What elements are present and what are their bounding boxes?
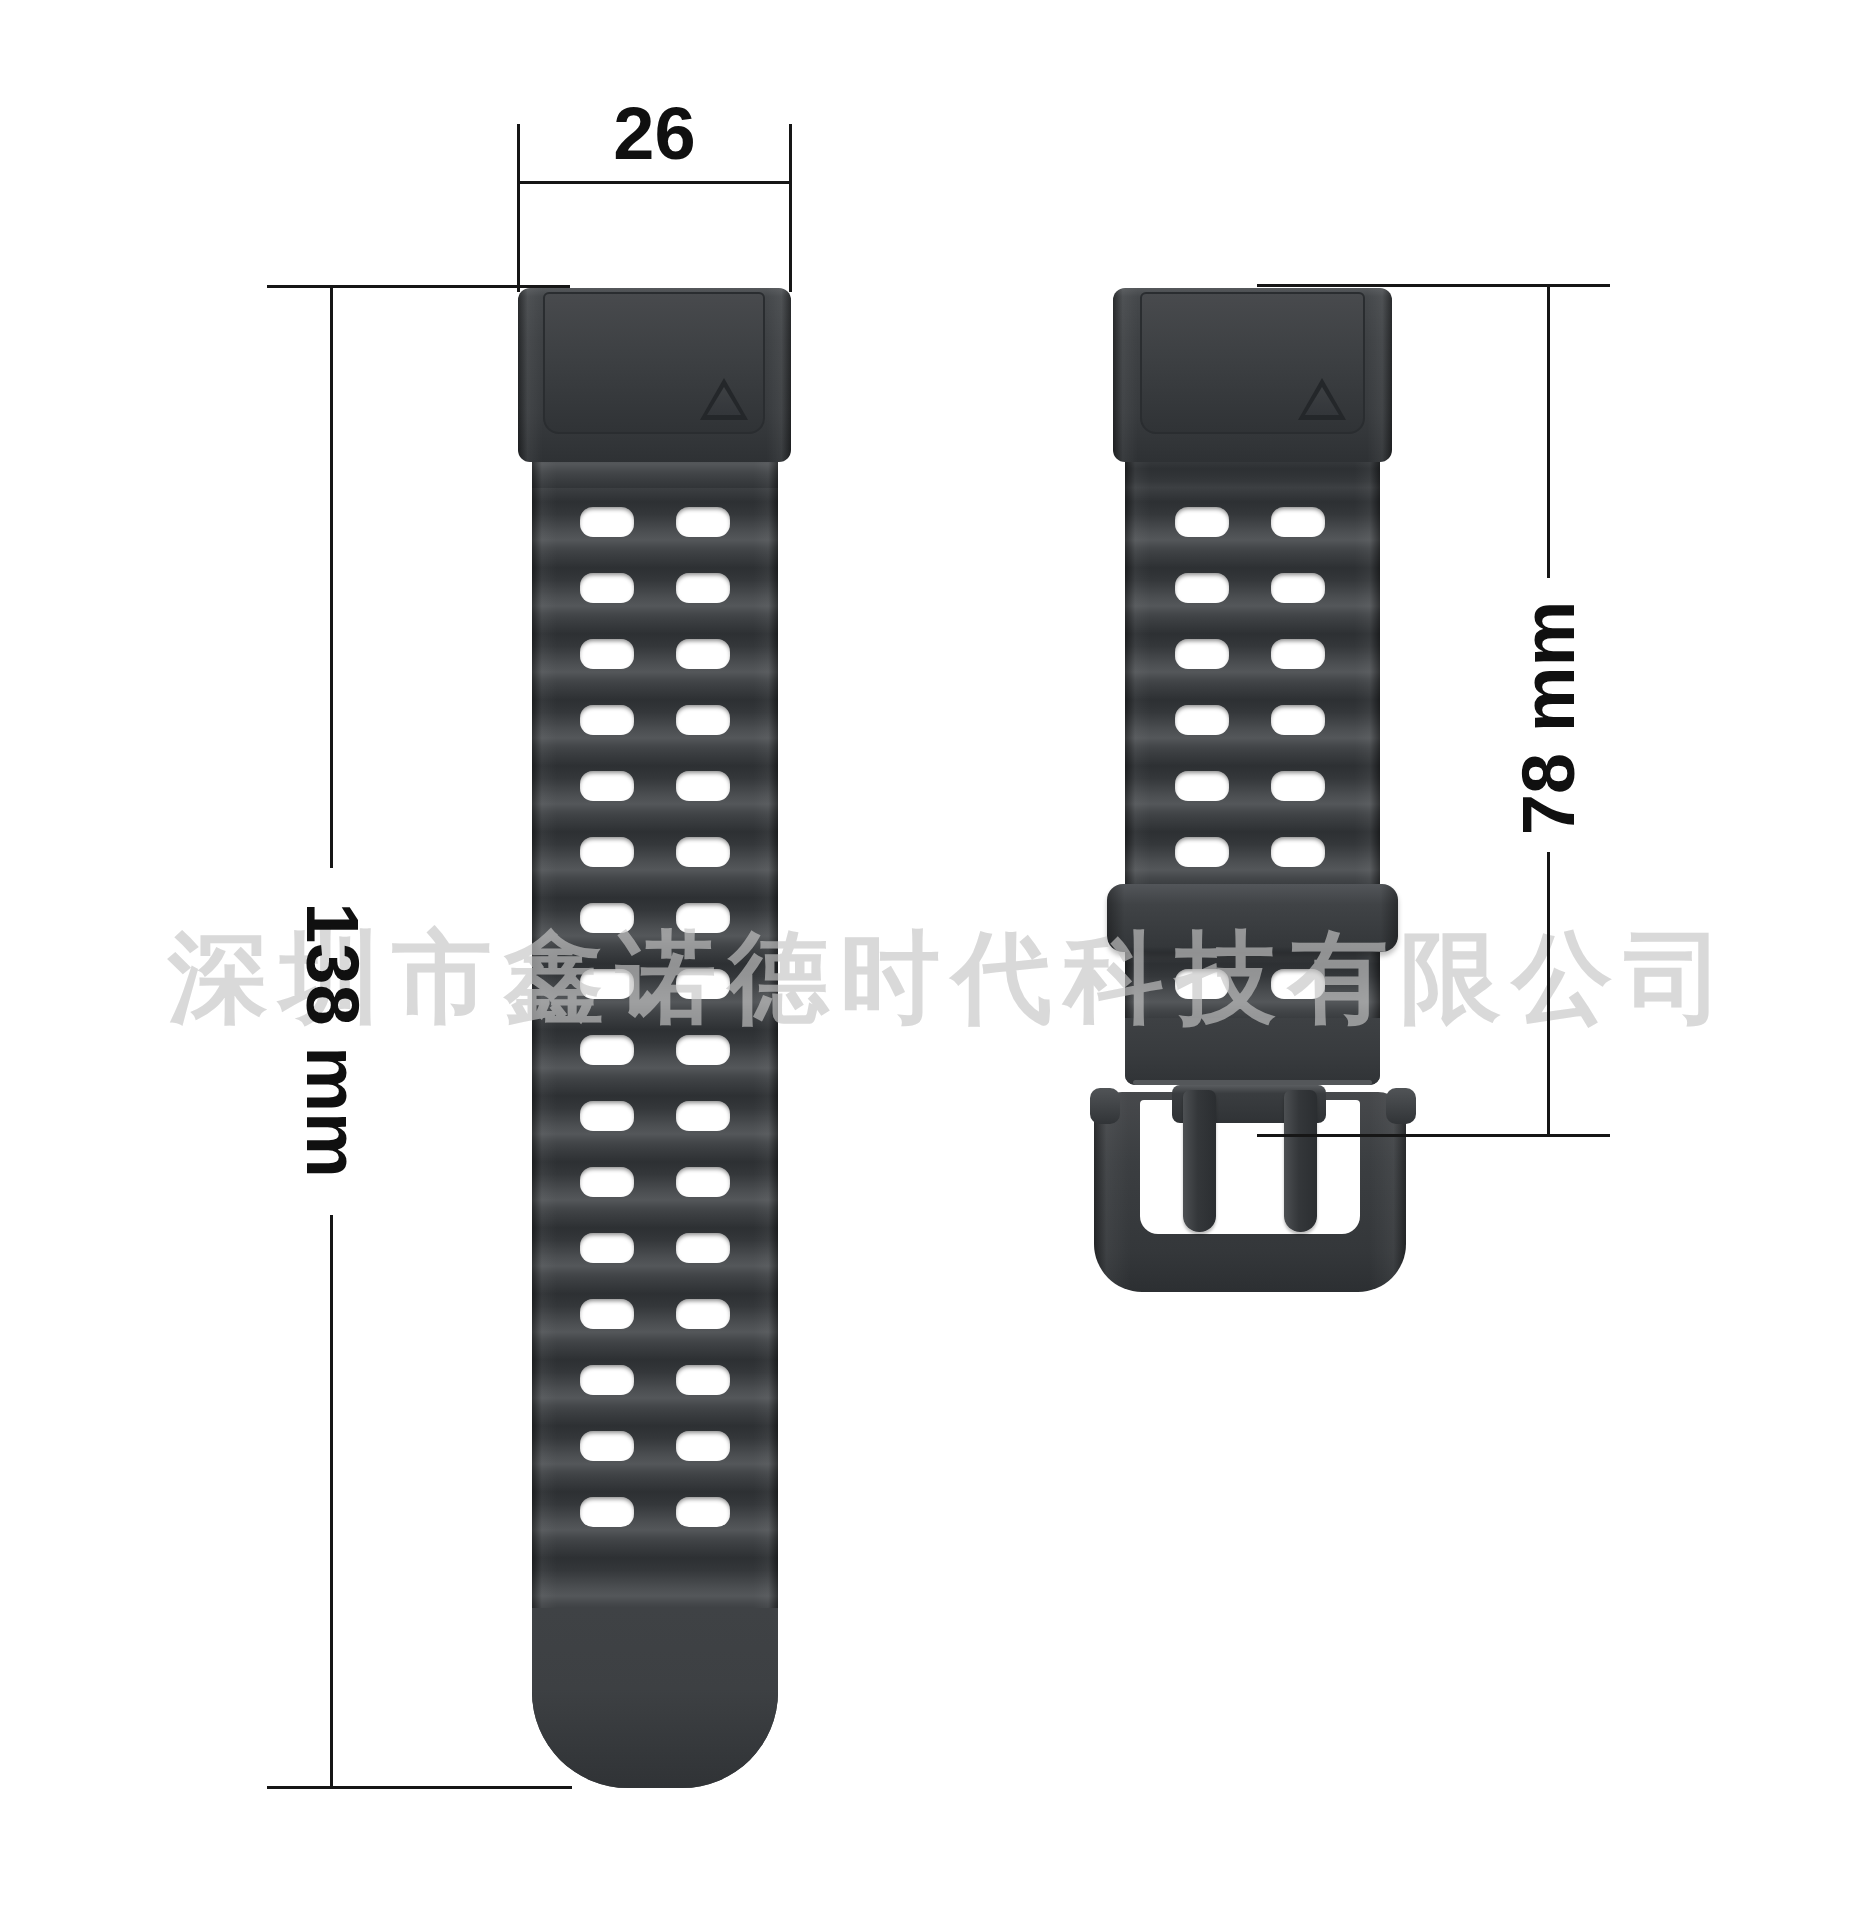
strap-hole [676, 573, 730, 603]
company-watermark: 深圳市鑫诺德时代科技有限公司 [168, 927, 1736, 1027]
short-length-tick-bottom [1257, 1134, 1610, 1137]
strap-hole [1175, 507, 1229, 537]
buckle-prong-right [1284, 1090, 1317, 1232]
strap-hole [676, 639, 730, 669]
strap-hole [580, 1035, 634, 1065]
long-strap-tail [532, 1608, 778, 1788]
strap-hole [580, 837, 634, 867]
strap-hole [676, 1299, 730, 1329]
buckle-hinge-left [1090, 1088, 1120, 1124]
strap-hole [1271, 771, 1325, 801]
strap-hole [1271, 573, 1325, 603]
strap-hole [1175, 837, 1229, 867]
strap-hole [676, 1365, 730, 1395]
long-length-line-lower [330, 1215, 333, 1789]
long-strap-length-label: 138 mm [295, 902, 369, 1178]
strap-hole [580, 705, 634, 735]
strap-hole [676, 837, 730, 867]
quick-release-connector-long [518, 288, 791, 462]
long-strap-body [532, 458, 778, 1788]
strap-hole [676, 507, 730, 537]
strap-hole [676, 705, 730, 735]
strap-hole [580, 1167, 634, 1197]
short-length-line-upper [1547, 284, 1550, 578]
strap-hole [580, 771, 634, 801]
long-length-tick-top [267, 285, 570, 288]
strap-hole [580, 639, 634, 669]
long-length-tick-bottom [267, 1786, 572, 1789]
strap-hole [676, 1101, 730, 1131]
strap-hole [1175, 771, 1229, 801]
strap-hole [1175, 573, 1229, 603]
strap-hole [676, 1431, 730, 1461]
strap-hole [1175, 705, 1229, 735]
strap-hole [676, 1497, 730, 1527]
strap-hole [676, 1035, 730, 1065]
strap-hole [676, 1233, 730, 1263]
strap-hole [1175, 639, 1229, 669]
strap-hole [676, 1167, 730, 1197]
strap-hole [580, 1101, 634, 1131]
strap-hole [1271, 705, 1325, 735]
strap-hole [676, 771, 730, 801]
band-width-dimension-label: 26 [518, 97, 791, 171]
quick-release-connector-short [1113, 288, 1392, 462]
strap-hole [580, 1299, 634, 1329]
strap-hole [580, 507, 634, 537]
width-dimension-line [518, 181, 791, 184]
product-dimension-diagram: 26 138 mm 78 mm 深圳市鑫诺德时代科技有限公司 [0, 0, 1876, 1920]
strap-hole [580, 573, 634, 603]
buckle-hinge-right [1386, 1088, 1416, 1124]
short-strap-length-label: 78 mm [1512, 601, 1586, 835]
short-length-line-lower [1547, 852, 1550, 1137]
buckle-prong-left [1183, 1090, 1216, 1232]
long-length-line-upper [330, 285, 333, 868]
strap-hole [580, 1233, 634, 1263]
strap-hole [1271, 507, 1325, 537]
short-length-tick-top [1257, 284, 1610, 287]
strap-hole [580, 1497, 634, 1527]
strap-hole [580, 1431, 634, 1461]
strap-hole [1271, 837, 1325, 867]
strap-hole [1271, 639, 1325, 669]
strap-hole [580, 1365, 634, 1395]
